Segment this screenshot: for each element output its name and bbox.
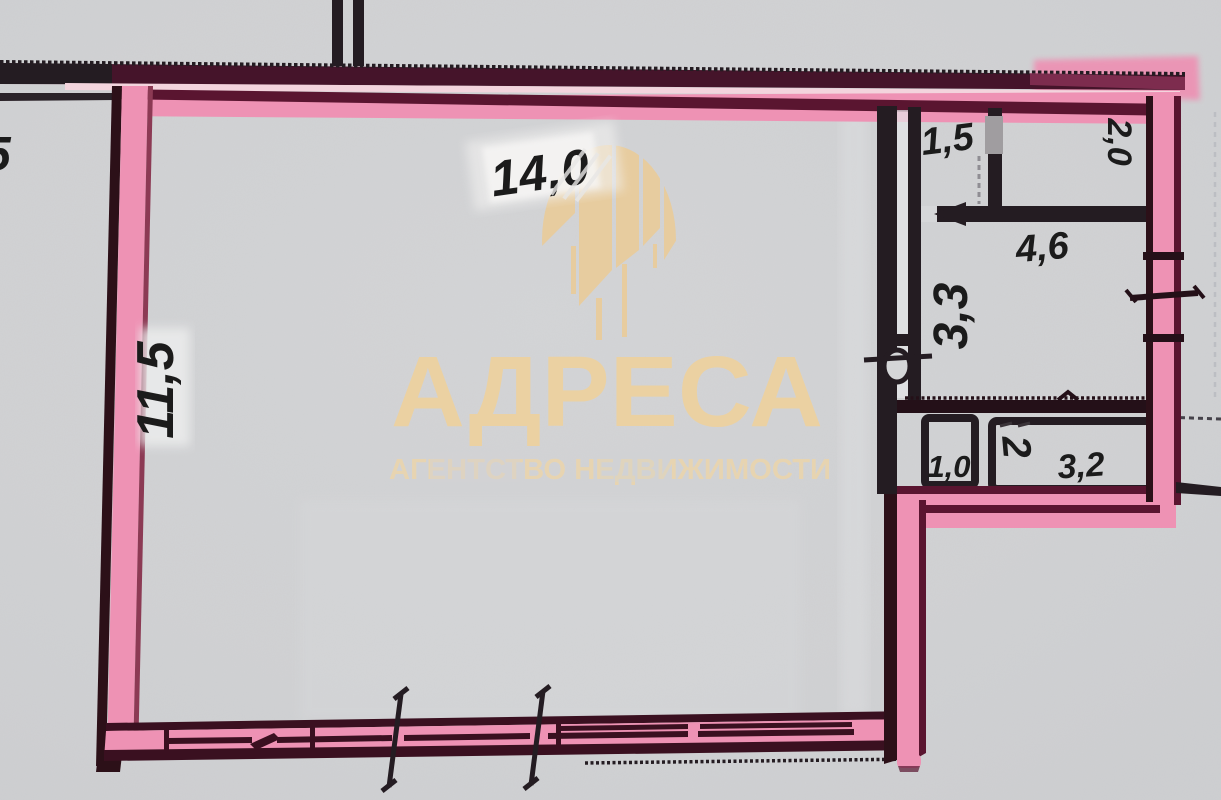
- svg-text:11,5: 11,5: [127, 340, 185, 438]
- svg-text:1,5: 1,5: [919, 116, 977, 164]
- svg-text:3,3: 3,3: [925, 282, 978, 349]
- svg-text:2,0: 2,0: [1100, 117, 1138, 165]
- svg-text:4,6: 4,6: [1013, 225, 1071, 272]
- svg-text:2: 2: [993, 433, 1039, 460]
- svg-text:АДРЕСА: АДРЕСА: [391, 336, 823, 448]
- svg-text:1,0: 1,0: [927, 449, 970, 484]
- svg-text:5: 5: [0, 128, 12, 181]
- svg-text:3,2: 3,2: [1056, 445, 1106, 486]
